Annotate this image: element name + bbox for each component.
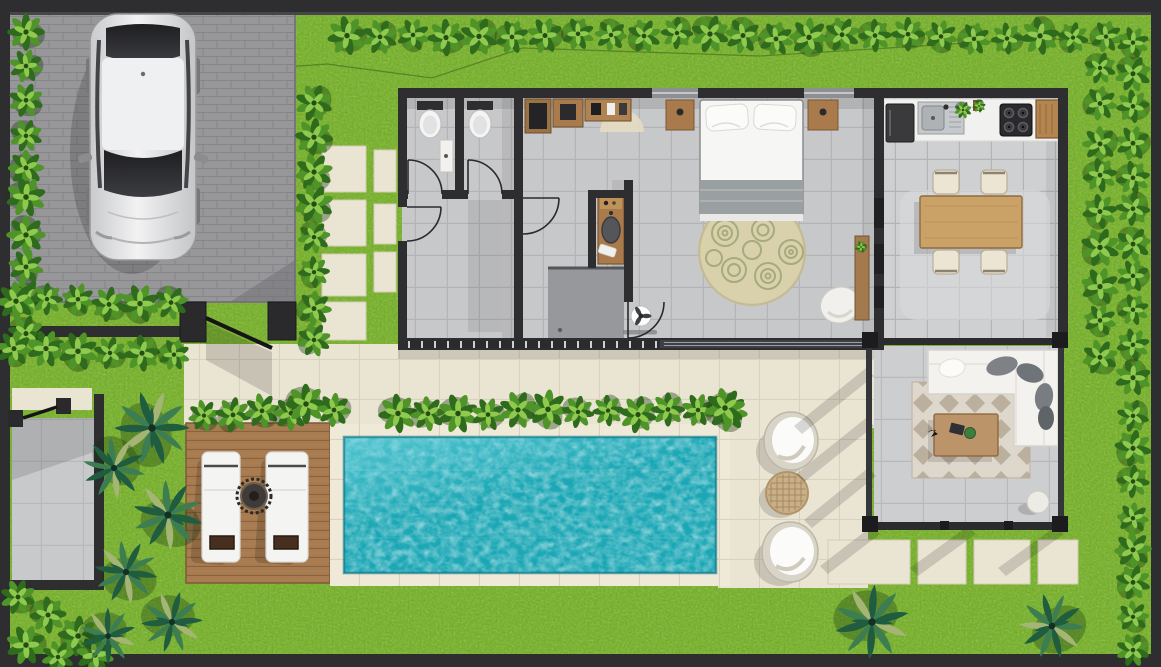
white-car xyxy=(70,14,209,274)
kitchen xyxy=(884,99,1060,142)
double-bed xyxy=(700,100,803,221)
wall-seg-c xyxy=(502,190,523,199)
sofa-pillow-gray-4 xyxy=(1038,406,1054,430)
sala-beam-west xyxy=(866,346,872,522)
shower-drain xyxy=(558,328,562,332)
wall-bedroom-divider xyxy=(624,180,633,302)
wall-house-left-b xyxy=(398,241,407,350)
hedge-shrub xyxy=(891,17,925,51)
wall-seg-a xyxy=(398,190,408,199)
wall-south xyxy=(0,654,1161,667)
toilet-tank-1 xyxy=(417,101,443,110)
floor-plan-canvas xyxy=(0,0,1161,667)
pillow-right xyxy=(753,104,796,131)
wall-east xyxy=(1151,0,1161,667)
car-rear-window xyxy=(106,24,180,62)
sala-beam-south xyxy=(874,522,1058,530)
faucet xyxy=(943,104,948,109)
ceiling-fan-icon xyxy=(631,306,652,326)
vanity-sink xyxy=(602,217,620,243)
wall-seg-b xyxy=(442,190,468,199)
pillow-left xyxy=(705,104,749,132)
wall-kitchen-top xyxy=(874,88,1068,98)
side-stool xyxy=(1027,491,1049,513)
toilet-tank-2 xyxy=(467,101,493,110)
floor-plan-svg xyxy=(0,0,1161,667)
table-plant xyxy=(965,428,976,439)
faucet xyxy=(609,211,613,215)
hedge-shrub xyxy=(7,13,45,51)
wall-wc-divider xyxy=(455,88,464,192)
blanket xyxy=(700,180,803,214)
wall-north xyxy=(0,0,1161,12)
swimming-pool xyxy=(330,424,730,586)
hedge-shrub xyxy=(651,392,685,426)
lounger-frame-1 xyxy=(210,536,234,549)
wc-2 xyxy=(467,101,493,138)
wall-hall-west xyxy=(514,88,523,338)
wall-bath-west xyxy=(588,190,596,268)
lounger-frame-2 xyxy=(274,536,298,549)
stove xyxy=(1000,104,1032,136)
beam-dining-south xyxy=(874,338,1068,345)
sliding-glass-bedroom xyxy=(660,340,872,348)
car-antenna xyxy=(141,72,145,76)
wall-kitchen-right xyxy=(1058,88,1068,346)
sala-beam-east xyxy=(1058,346,1064,522)
house-wall-shadow xyxy=(398,350,884,359)
wall-house-left-a xyxy=(398,88,407,207)
